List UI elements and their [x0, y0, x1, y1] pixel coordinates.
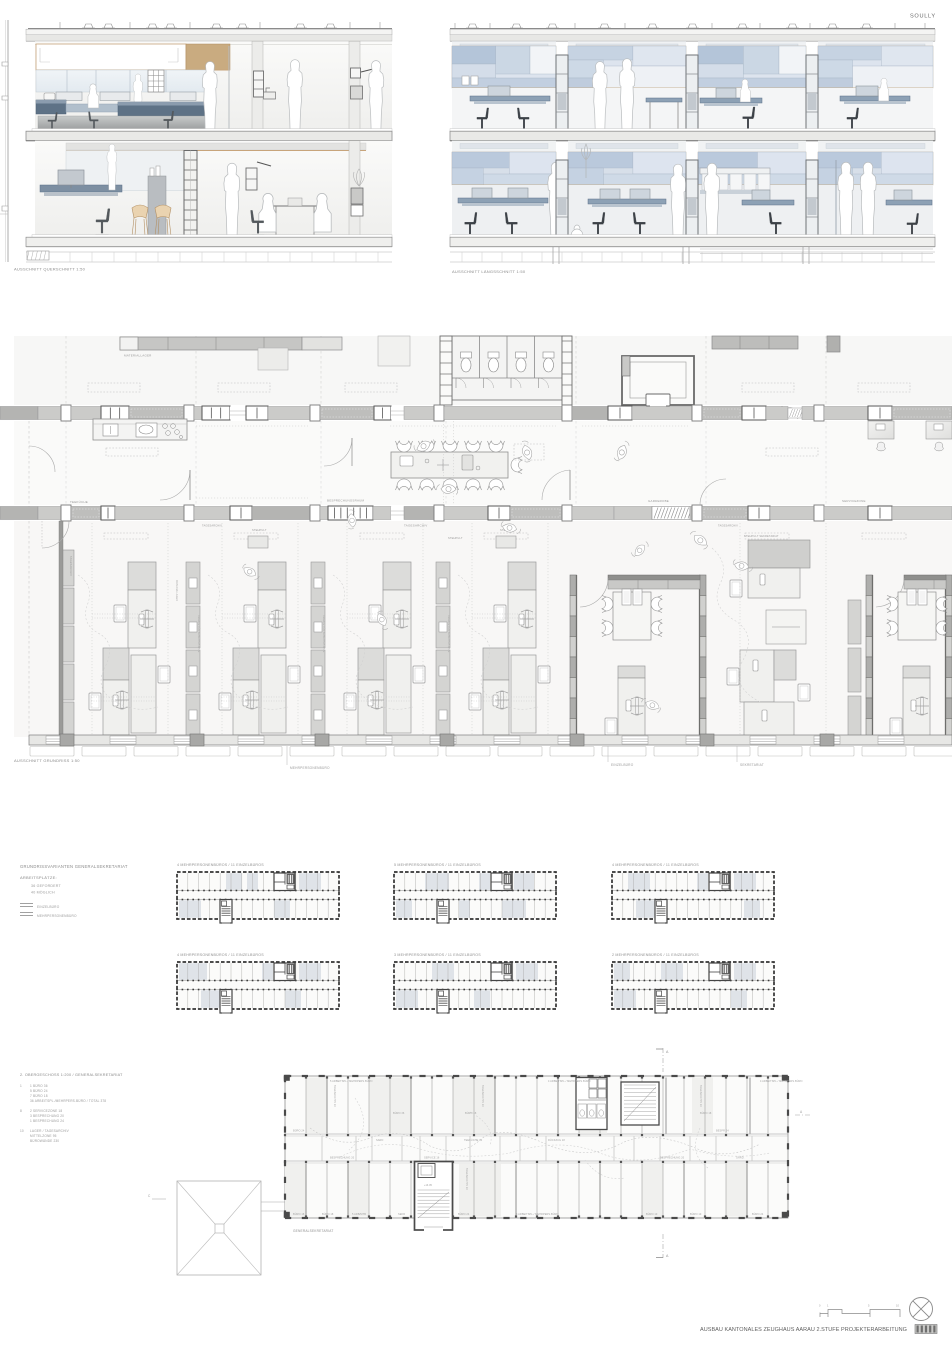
- svg-text:4 MEHRPERSONENBÜROS / 11 EINZE: 4 MEHRPERSONENBÜROS / 11 EINZELBÜROS: [177, 863, 264, 867]
- svg-text:MATERIALLAGER: MATERIALLAGER: [124, 354, 152, 358]
- svg-text:TEEKÜCHE 10: TEEKÜCHE 10: [464, 1139, 483, 1142]
- svg-text:TAGESARCHIV 10: TAGESARCHIV 10: [699, 1085, 702, 1107]
- svg-text:5 ARBEITSPL./ MEHRPERS.BÜRO: 5 ARBEITSPL./ MEHRPERS.BÜRO: [330, 1080, 373, 1083]
- svg-text:4 ARBEITSPL./ MEHRPERS.BÜRO: 4 ARBEITSPL./ MEHRPERS.BÜRO: [760, 1080, 803, 1083]
- svg-text:MITTELZONE 95: MITTELZONE 95: [30, 1134, 57, 1138]
- svg-text:4 MEHRPERSONENBÜROS / 11 EINZE: 4 MEHRPERSONENBÜROS / 11 EINZELBÜROS: [177, 953, 264, 957]
- svg-text:TEEKÜCHE: TEEKÜCHE: [70, 500, 88, 504]
- svg-text:7 BÜRO 18: 7 BÜRO 18: [30, 1094, 48, 1098]
- svg-text:MATERIALLAGER: MATERIALLAGER: [175, 580, 178, 601]
- svg-text:GARD.: GARD.: [736, 1157, 745, 1160]
- svg-text:10: 10: [20, 1129, 24, 1133]
- svg-text:8: 8: [20, 1109, 22, 1113]
- svg-text:3 BESPRECHUNG 20: 3 BESPRECHUNG 20: [30, 1114, 64, 1118]
- svg-text:4 ARBEITSPL./ MEHRPERS.BÜRO: 4 ARBEITSPL./ MEHRPERS.BÜRO: [516, 1213, 559, 1216]
- svg-text:BÜRO 10: BÜRO 10: [690, 1213, 702, 1216]
- svg-text:SEKRETARIAT: SEKRETARIAT: [740, 763, 764, 767]
- svg-text:STEHPULT: STEHPULT: [252, 528, 267, 532]
- svg-text:2 MEHRPERSONENBÜROS / 11 EINZE: 2 MEHRPERSONENBÜROS / 11 EINZELBÜROS: [612, 953, 699, 957]
- svg-text:4 ARBEITSPL./ MEHRPERS.BÜRO: 4 ARBEITSPL./ MEHRPERS.BÜRO: [548, 1080, 591, 1083]
- svg-text:SEKR: SEKR: [398, 1213, 405, 1216]
- svg-text:A: A: [666, 1254, 669, 1258]
- svg-text:36 GEFORDERT: 36 GEFORDERT: [31, 884, 61, 888]
- svg-text:STEHPULT: STEHPULT: [448, 536, 463, 540]
- svg-text:4 MEHRPERSONENBÜROS / 11 EINZE: 4 MEHRPERSONENBÜROS / 11 EINZELBÜROS: [612, 863, 699, 867]
- svg-text:MEHRPERSONENBÜRO: MEHRPERSONENBÜRO: [290, 766, 330, 770]
- svg-text:AUSSCHNITT QUERSCHNITT 1:50: AUSSCHNITT QUERSCHNITT 1:50: [14, 267, 86, 272]
- svg-text:EINZELBÜRO: EINZELBÜRO: [611, 763, 634, 767]
- svg-text:+13.05: +13.05: [424, 1184, 433, 1187]
- svg-text:BÜRO 24: BÜRO 24: [458, 1213, 470, 1216]
- svg-text:REGALE FÜR ARBEITSPLÄTZE: REGALE FÜR ARBEITSPLÄTZE: [447, 615, 450, 653]
- svg-text:AUSSCHNITT GRUNDRISS 1:50: AUSSCHNITT GRUNDRISS 1:50: [14, 758, 80, 763]
- svg-text:BESPRECHUNGSRAUM: BESPRECHUNGSRAUM: [327, 499, 365, 503]
- svg-text:SOULLY: SOULLY: [910, 14, 936, 20]
- svg-text:1 BÜRO 36: 1 BÜRO 36: [30, 1084, 48, 1088]
- svg-text:REGALE FÜR ARBEITSPLÄTZE: REGALE FÜR ARBEITSPLÄTZE: [322, 615, 325, 653]
- svg-text:LAGER / TAGESARCHIV: LAGER / TAGESARCHIV: [30, 1129, 70, 1133]
- svg-text:TAGESARCHIV 10: TAGESARCHIV 10: [465, 1168, 468, 1190]
- svg-text:TAGESARCHIV: TAGESARCHIV: [404, 524, 427, 528]
- svg-text:ARBEITSPLÄTZE:: ARBEITSPLÄTZE:: [20, 875, 57, 880]
- svg-text:TAGESARCHIV: TAGESARCHIV: [202, 524, 222, 528]
- svg-text:BÜRO 24: BÜRO 24: [293, 1130, 305, 1133]
- svg-text:36 ARBEITSPL./MEHRPERS.BÜRO /: 36 ARBEITSPL./MEHRPERS.BÜRO / TOTAL 378: [30, 1099, 106, 1103]
- svg-text:STEHPULT SEKRETARIAT: STEHPULT SEKRETARIAT: [744, 534, 779, 538]
- svg-text:AUSBAU KANTONALES ZEUGHAUS AAR: AUSBAU KANTONALES ZEUGHAUS AARAU 2.STUFE…: [700, 1327, 907, 1333]
- svg-text:BÜRO 18: BÜRO 18: [293, 1213, 305, 1216]
- svg-text:2. OBERGESCHOSS 1:200 / GENERA: 2. OBERGESCHOSS 1:200 / GENERALSEKRETARI…: [20, 1073, 123, 1077]
- svg-text:1 BESPRECHUNG 24: 1 BESPRECHUNG 24: [30, 1119, 64, 1123]
- svg-text:5 ARB/MTB: 5 ARB/MTB: [352, 1213, 366, 1216]
- svg-text:1: 1: [20, 1084, 22, 1088]
- svg-text:40 MÖGLICH: 40 MÖGLICH: [31, 891, 55, 895]
- svg-text:TAGESARCHIV: TAGESARCHIV: [718, 524, 738, 528]
- svg-text:5 BÜRO 24: 5 BÜRO 24: [30, 1089, 48, 1093]
- svg-text:TAGESARCHIV 10: TAGESARCHIV 10: [333, 1085, 336, 1107]
- svg-text:BÜRO 24: BÜRO 24: [752, 1213, 764, 1216]
- svg-text:BÜRO 18: BÜRO 18: [465, 1112, 477, 1115]
- svg-text:TAGESARCHIV 10: TAGESARCHIV 10: [481, 1085, 484, 1107]
- svg-text:2 SERVICEZONE 18: 2 SERVICEZONE 18: [30, 1109, 62, 1113]
- svg-text:GRUNDRISSVARIANTEN GENERALSEKR: GRUNDRISSVARIANTEN GENERALSEKRETARIAT: [20, 864, 128, 869]
- svg-text:SERVICEZONE: SERVICEZONE: [842, 499, 866, 503]
- svg-text:3 MEHRPERSONENBÜROS / 11 EINZE: 3 MEHRPERSONENBÜROS / 11 EINZELBÜROS: [394, 953, 481, 957]
- svg-text:MEHRPERSONENBÜRO: MEHRPERSONENBÜRO: [37, 914, 77, 918]
- svg-text:BÜRO 18: BÜRO 18: [700, 1112, 712, 1115]
- svg-text:A: A: [666, 1050, 669, 1054]
- svg-text:BÜRO 36: BÜRO 36: [393, 1112, 405, 1115]
- svg-text:10: 10: [896, 1304, 900, 1308]
- svg-text:BÜRO 18: BÜRO 18: [322, 1213, 334, 1216]
- svg-text:RÜCKZUG 18: RÜCKZUG 18: [548, 1139, 565, 1142]
- svg-text:BESPRECHUNG 20: BESPRECHUNG 20: [330, 1157, 355, 1160]
- svg-text:SARD: SARD: [376, 1139, 383, 1142]
- svg-text:TAGESARCHIV: TAGESARCHIV: [69, 556, 73, 576]
- svg-text:BÜRO 10: BÜRO 10: [646, 1213, 658, 1216]
- svg-text:BESPR 24: BESPR 24: [716, 1130, 729, 1133]
- svg-text:REGALE FÜR ARBEITSPLÄTZE: REGALE FÜR ARBEITSPLÄTZE: [197, 615, 200, 653]
- svg-text:BÜROWÄNDE 230: BÜROWÄNDE 230: [30, 1139, 59, 1143]
- svg-text:EINZELBÜRO: EINZELBÜRO: [37, 905, 60, 909]
- svg-text:BESPRECHUNG 20: BESPRECHUNG 20: [660, 1157, 685, 1160]
- svg-text:AUSSCHNITT LÄNGSSCHNITT 1:50: AUSSCHNITT LÄNGSSCHNITT 1:50: [452, 269, 526, 274]
- svg-text:GENERALSEKRETARIAT: GENERALSEKRETARIAT: [293, 1229, 334, 1233]
- svg-text:GARDEROBE: GARDEROBE: [648, 499, 669, 503]
- svg-text:5 MEHRPERSONENBÜROS / 11 EINZE: 5 MEHRPERSONENBÜROS / 11 EINZELBÜROS: [394, 863, 481, 867]
- svg-text:SERVICE 16: SERVICE 16: [424, 1157, 440, 1160]
